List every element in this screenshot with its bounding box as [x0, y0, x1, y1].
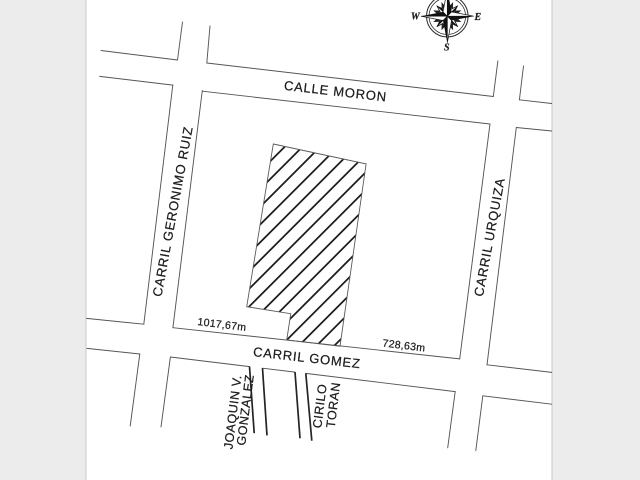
svg-text:S: S — [444, 43, 450, 54]
svg-text:W: W — [411, 12, 421, 23]
svg-text:E: E — [474, 12, 482, 23]
